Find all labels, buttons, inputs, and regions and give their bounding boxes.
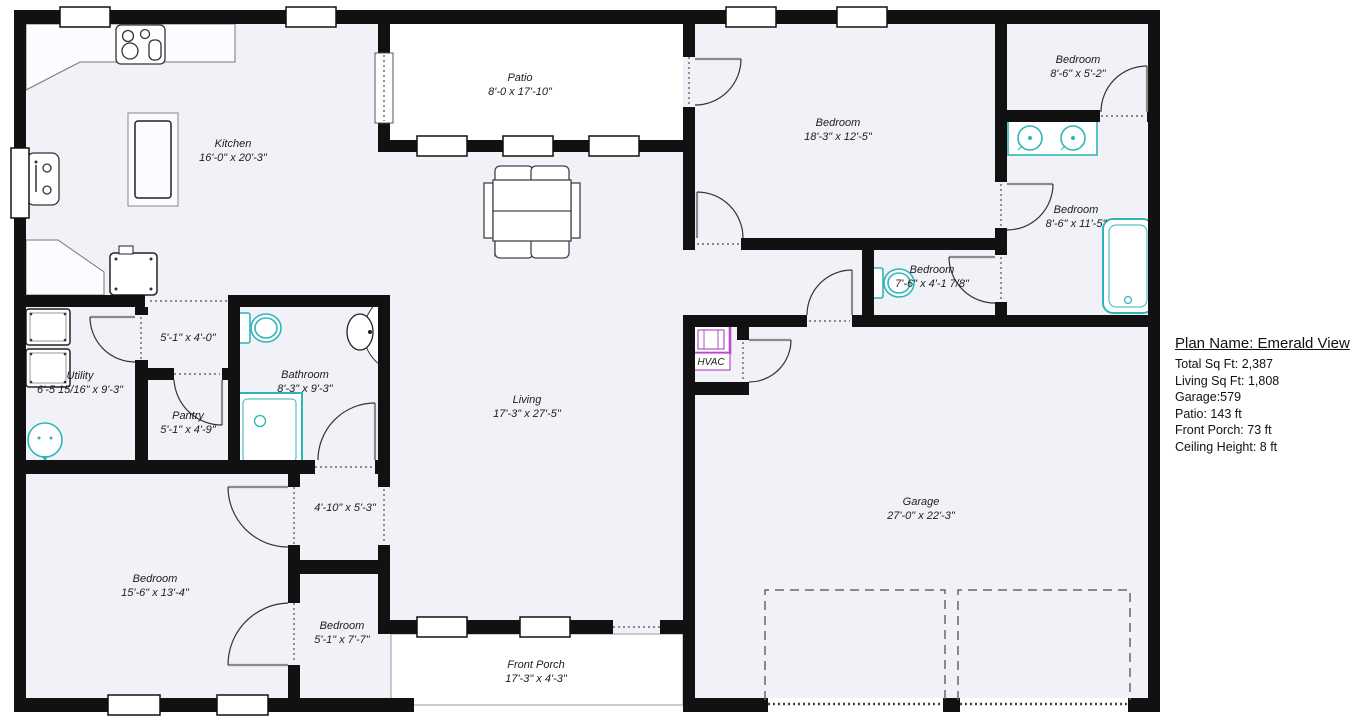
window xyxy=(11,148,29,218)
double-vanity-icon xyxy=(1008,121,1097,155)
room-label-bathroom: Bathroom8'-3" x 9'-3" xyxy=(277,369,332,396)
room-label-living: Living17'-3" x 27'-5" xyxy=(493,394,561,421)
room-label-front-porch: Front Porch17'-3" x 4'-3" xyxy=(505,659,567,686)
room-label-bedroom-top-right: Bedroom8'-6" x 5'-2" xyxy=(1050,54,1105,81)
room-label-hvac: HVAC xyxy=(697,356,724,370)
window xyxy=(589,136,639,156)
floor-plan-drawing xyxy=(0,0,1366,722)
plan-info: Plan Name: Emerald View Total Sq Ft: 2,3… xyxy=(1175,335,1365,455)
bathtub-icon xyxy=(1103,219,1153,313)
window xyxy=(60,7,110,27)
room-label-bedroom-small: Bedroom5'-1" x 7'-7" xyxy=(314,620,369,647)
room-label-bedroom-right: Bedroom8'-6" x 11'-5" xyxy=(1046,204,1107,231)
room-label-kitchen: Kitchen16'-0" x 20'-3" xyxy=(199,138,267,165)
kitchen-sink-icon xyxy=(27,153,59,205)
window xyxy=(417,617,467,637)
window xyxy=(520,617,570,637)
room-label-patio: Patio8'-0 x 17'-10" xyxy=(488,72,552,99)
room-label-bedroom-wc: Bedroom7'-6" x 4'-1 7/8" xyxy=(895,264,969,291)
patio-screen-opening xyxy=(375,53,393,123)
plan-garage-sqft: Garage:579 xyxy=(1175,389,1365,406)
floor-fills xyxy=(26,24,1148,705)
window xyxy=(503,136,553,156)
plan-ceiling-height: Ceiling Height: 8 ft xyxy=(1175,439,1365,456)
window xyxy=(108,695,160,715)
plan-patio-sqft: Patio: 143 ft xyxy=(1175,406,1365,423)
washer-icon xyxy=(26,309,70,345)
window xyxy=(837,7,887,27)
dining-table-icon xyxy=(484,166,580,258)
stove-icon xyxy=(116,25,165,64)
window xyxy=(726,7,776,27)
window xyxy=(417,136,467,156)
plan-living-sqft: Living Sq Ft: 1,808 xyxy=(1175,373,1365,390)
room-label-bedroom-bottom-left: Bedroom15'-6" x 13'-4" xyxy=(121,573,189,600)
room-label-garage: Garage27'-0" x 22'-3" xyxy=(887,496,955,523)
room-label-utility: Utility6'-5 15/16" x 9'-3" xyxy=(37,370,123,397)
room-label-hall2: 4'-10" x 5'-3" xyxy=(314,502,376,516)
room-label-pantry: Pantry5'-1" x 4'-9" xyxy=(160,410,215,437)
plan-porch-sqft: Front Porch: 73 ft xyxy=(1175,422,1365,439)
floor-plan-page: Kitchen16'-0" x 20'-3" Patio8'-0 x 17'-1… xyxy=(0,0,1366,722)
shower-icon xyxy=(237,393,302,468)
window xyxy=(286,7,336,27)
bathroom-toilet-icon xyxy=(238,313,281,343)
kitchen-island xyxy=(128,113,178,206)
plan-title: Plan Name: Emerald View xyxy=(1175,335,1365,352)
room-label-hall: 5'-1" x 4'-0" xyxy=(160,332,215,346)
refrigerator-icon xyxy=(110,246,157,295)
room-label-bedroom-master: Bedroom18'-3" x 12'-5" xyxy=(804,117,872,144)
plan-total-sqft: Total Sq Ft: 2,387 xyxy=(1175,356,1365,373)
window xyxy=(217,695,268,715)
